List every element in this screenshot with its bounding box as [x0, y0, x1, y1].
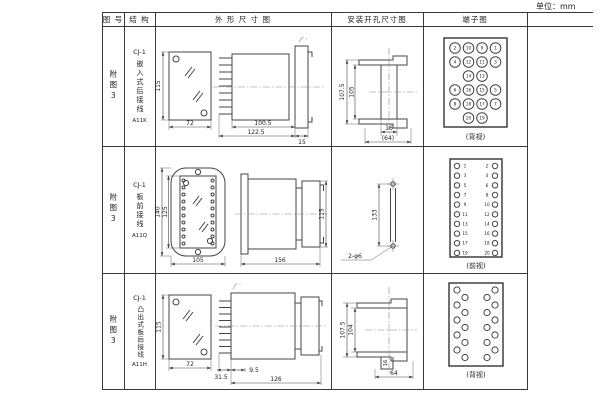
- outline-drawing-row1: 115 72 100.5 122.5 15: [155, 26, 331, 146]
- header-cell-fig: 图 号: [102, 12, 124, 26]
- dim-front-width: 105: [192, 257, 204, 264]
- svg-text:12: 12: [484, 212, 490, 217]
- structure-code: A11H: [132, 362, 147, 368]
- table-bottom-border: [102, 389, 527, 390]
- svg-text:17: 17: [462, 241, 468, 246]
- svg-text:8: 8: [454, 102, 457, 107]
- dim-overall-width: (64): [382, 135, 394, 142]
- terminal-diagram-row2: 1 3 5 7 9 11 13 15 17 19 2 4 6 8 10 12 1…: [423, 146, 527, 273]
- hatch-mark: [193, 334, 203, 345]
- svg-text:16: 16: [484, 231, 490, 236]
- svg-text:4: 4: [454, 60, 457, 65]
- dim-overall-width: 64: [390, 370, 398, 377]
- header-cell-struct: 结 构: [124, 12, 155, 26]
- svg-text:7: 7: [464, 193, 467, 198]
- structure-code: A11K: [132, 118, 146, 124]
- terminal-numbers: 2 10 9 1 4 12 11 3 14 13 6 16 15 5 8 18 …: [454, 46, 498, 121]
- mount-drawing-row1: 107.5 105 16 (64): [331, 26, 423, 146]
- dim-inner-height: 105: [349, 86, 356, 98]
- dim-front-height: 115: [155, 80, 162, 92]
- mount-drawing-row3: 107.5 104 16 64: [331, 273, 423, 389]
- svg-text:3: 3: [494, 60, 497, 65]
- svg-text:1: 1: [494, 46, 497, 51]
- table-right-border: [527, 12, 528, 390]
- dim-inner-height: 125: [162, 206, 169, 218]
- fig-no-text: 附图3: [109, 315, 117, 348]
- svg-text:14: 14: [484, 221, 490, 226]
- svg-text:13: 13: [462, 221, 468, 226]
- terminal-dots: [182, 179, 214, 245]
- svg-text:10: 10: [484, 202, 490, 207]
- dim-body-len: 100.5: [254, 120, 271, 127]
- hole-callout: 2-φ6: [348, 253, 362, 260]
- svg-text:3: 3: [464, 173, 467, 178]
- row2-mount-cell: 133 2-φ6: [331, 146, 423, 273]
- dim-pin-length: 31.5: [214, 374, 228, 381]
- header-cell-mount: 安装开孔尺寸图: [331, 12, 423, 26]
- pin-comb: [219, 58, 232, 114]
- view-label: (背视): [466, 132, 486, 141]
- svg-text:9: 9: [464, 202, 467, 207]
- svg-text:9: 9: [481, 46, 484, 51]
- svg-text:2: 2: [454, 46, 457, 51]
- svg-text:2: 2: [486, 164, 489, 169]
- outline-drawing-row3: 115 72 31.5 9.5 126: [155, 273, 331, 389]
- svg-text:20: 20: [484, 250, 490, 255]
- hatch-mark: [193, 196, 202, 206]
- mount-drawing-row2: 133 2-φ6: [331, 146, 423, 273]
- row3-mount-cell: 107.5 104 16 64: [331, 273, 423, 389]
- svg-text:14: 14: [466, 74, 472, 79]
- svg-text:1: 1: [464, 164, 467, 169]
- dim-outer-height: 140: [155, 206, 162, 218]
- svg-text:16: 16: [466, 88, 472, 93]
- svg-text:15: 15: [479, 88, 485, 93]
- dim-overall-len: 122.5: [247, 129, 264, 136]
- svg-text:5: 5: [464, 183, 467, 188]
- structure-desc: 板前接线: [136, 193, 143, 229]
- dim-hole-pitch: 133: [372, 209, 379, 221]
- outline-drawing-row2: 140 125 105 156 115: [155, 146, 331, 273]
- row3-outline-cell: 115 72 31.5 9.5 126: [155, 273, 331, 389]
- svg-text:11: 11: [479, 60, 485, 65]
- center-line: [369, 48, 417, 136]
- row1-structure: CJ-1 嵌入式后接线 A11K: [124, 26, 155, 146]
- svg-text:6: 6: [454, 88, 457, 93]
- header-cell-terminal: 端子图: [423, 12, 527, 26]
- dim-offset: 9.5: [249, 367, 259, 374]
- svg-text:5: 5: [494, 88, 497, 93]
- dim-outer-height: 107.5: [339, 83, 346, 100]
- dim-slot-width: 16: [385, 125, 393, 132]
- svg-text:12: 12: [466, 60, 472, 65]
- structure-code: A11Q: [132, 233, 147, 239]
- svg-text:4: 4: [486, 173, 489, 178]
- view-label: (前视): [466, 261, 486, 270]
- svg-text:13: 13: [479, 74, 485, 79]
- svg-text:17: 17: [479, 102, 485, 107]
- clip-hook: [299, 37, 308, 42]
- spec-sheet-page: 单位：mm 图 号 结 构 外 形 尺 寸 图 安装开孔尺寸图 端子图 附图3 …: [0, 0, 600, 400]
- row1-terminal-cell: 2 10 9 1 4 12 11 3 14 13 6 16 15 5 8 18 …: [423, 26, 527, 146]
- fig-no-text: 附图3: [109, 70, 117, 103]
- dim-slot-width: 16: [383, 360, 389, 366]
- row3-terminal-cell: (背视): [423, 273, 527, 389]
- hatch-mark: [199, 222, 208, 232]
- fig-no-text: 附图3: [109, 193, 117, 226]
- row1-outline-cell: 115 72 100.5 122.5 15: [155, 26, 331, 146]
- dim-flange-depth: 15: [298, 139, 306, 146]
- model-text: CJ-1: [133, 48, 146, 56]
- svg-text:15: 15: [462, 231, 468, 236]
- dim-front-height: 115: [156, 321, 163, 333]
- row2-structure: CJ-1 板前接线 A11Q: [124, 146, 155, 273]
- structure-desc: 凸出式板后接线: [136, 306, 143, 359]
- clip-hook: [233, 284, 242, 289]
- row2-outline-cell: 140 125 105 156 115: [155, 146, 331, 273]
- dim-side-height: 115: [319, 208, 326, 220]
- structure-desc: 嵌入式后接线: [136, 60, 143, 114]
- terminal-circles: [454, 287, 498, 361]
- row1-fig-no: 附图3: [102, 26, 124, 146]
- pin-comb: [219, 301, 231, 353]
- model-text: CJ-1: [133, 294, 146, 302]
- dim-body-len: 126: [270, 376, 282, 383]
- terminal-diagram-row3: (背视): [423, 273, 527, 389]
- row3-structure: CJ-1 凸出式板后接线 A11H: [124, 273, 155, 389]
- dim-front-width: 72: [186, 120, 194, 127]
- svg-text:8: 8: [486, 193, 489, 198]
- row2-fig-no: 附图3: [102, 146, 124, 273]
- svg-text:11: 11: [462, 212, 468, 217]
- row1-mount-cell: 107.5 105 16 (64): [331, 26, 423, 146]
- view-label: (背视): [466, 370, 486, 379]
- row2-terminal-cell: 1 3 5 7 9 11 13 15 17 19 2 4 6 8 10 12 1…: [423, 146, 527, 273]
- dim-outer-height: 107.5: [340, 321, 347, 338]
- hatch-mark: [185, 67, 195, 78]
- dim-body-len: 156: [274, 257, 286, 264]
- svg-text:10: 10: [466, 46, 472, 51]
- model-text: CJ-1: [133, 181, 146, 189]
- row3-fig-no: 附图3: [102, 273, 124, 389]
- hatch-mark: [183, 310, 193, 321]
- header-cell-outline: 外 形 尺 寸 图: [155, 12, 331, 26]
- terminal-circles: [450, 43, 501, 124]
- svg-text:6: 6: [486, 183, 489, 188]
- terminal-numbers: 1 3 5 7 9 11 13 15 17 19 2 4 6 8 10 12 1…: [462, 164, 490, 256]
- svg-text:18: 18: [484, 241, 490, 246]
- svg-text:19: 19: [479, 116, 485, 121]
- svg-text:20: 20: [466, 116, 472, 121]
- svg-text:7: 7: [494, 102, 497, 107]
- terminal-diagram-row1: 2 10 9 1 4 12 11 3 14 13 6 16 15 5 8 18 …: [423, 26, 527, 146]
- svg-text:19: 19: [462, 250, 468, 255]
- hatch-mark: [193, 91, 203, 102]
- dim-front-width: 72: [186, 361, 194, 368]
- svg-text:18: 18: [466, 102, 472, 107]
- dim-inner-height: 104: [348, 324, 355, 336]
- unit-label: 单位：mm: [536, 1, 576, 12]
- terminal-circles: [454, 163, 497, 255]
